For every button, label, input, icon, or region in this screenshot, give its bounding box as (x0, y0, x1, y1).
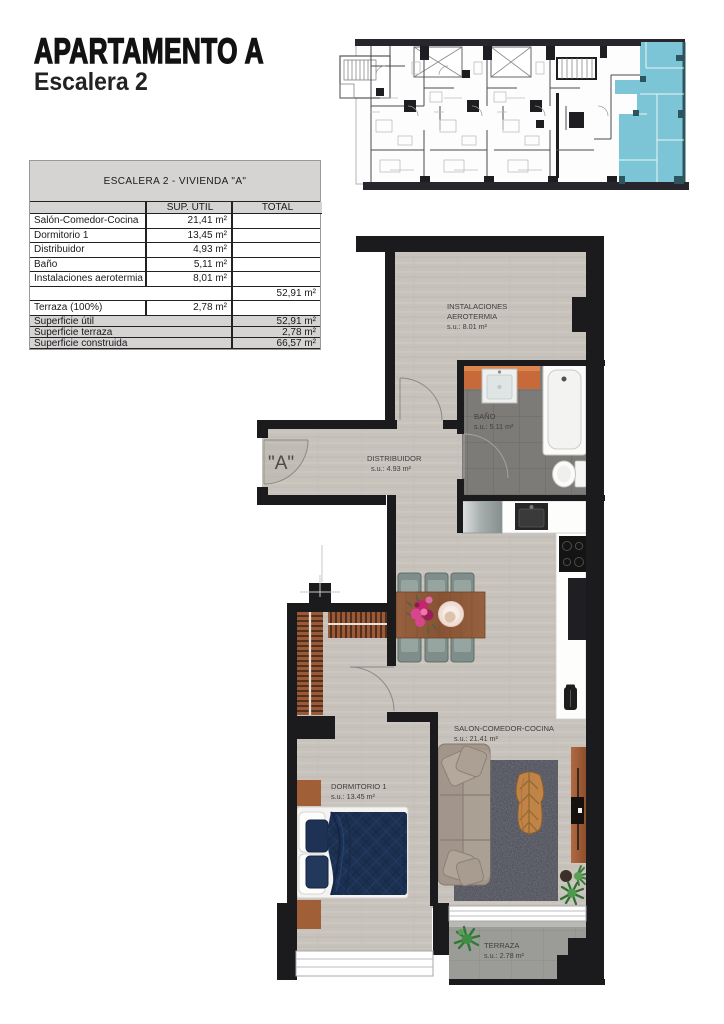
svg-text:"A": "A" (268, 453, 294, 474)
svg-text:BAÑO: BAÑO (474, 412, 496, 421)
svg-text:s.u.: 21.41 m²: s.u.: 21.41 m² (454, 734, 499, 743)
svg-text:s.u.: 5.11 m²: s.u.: 5.11 m² (474, 422, 514, 431)
svg-text:INSTALACIONES: INSTALACIONES (447, 302, 507, 311)
svg-text:s.u.: 2.78 m²: s.u.: 2.78 m² (484, 951, 525, 960)
svg-text:TERRAZA: TERRAZA (484, 941, 520, 950)
svg-text:DORMITORIO 1: DORMITORIO 1 (331, 782, 387, 791)
svg-text:s.u.: 13.45 m²: s.u.: 13.45 m² (331, 792, 376, 801)
svg-text:AEROTERMIA: AEROTERMIA (447, 312, 498, 321)
svg-text:SALON-COMEDOR-COCINA: SALON-COMEDOR-COCINA (454, 724, 555, 733)
svg-text:s.u.: 8.01 m²: s.u.: 8.01 m² (447, 322, 488, 331)
svg-text:DISTRIBUIDOR: DISTRIBUIDOR (367, 454, 422, 463)
svg-text:s.u.: 4.93 m²: s.u.: 4.93 m² (371, 464, 412, 473)
